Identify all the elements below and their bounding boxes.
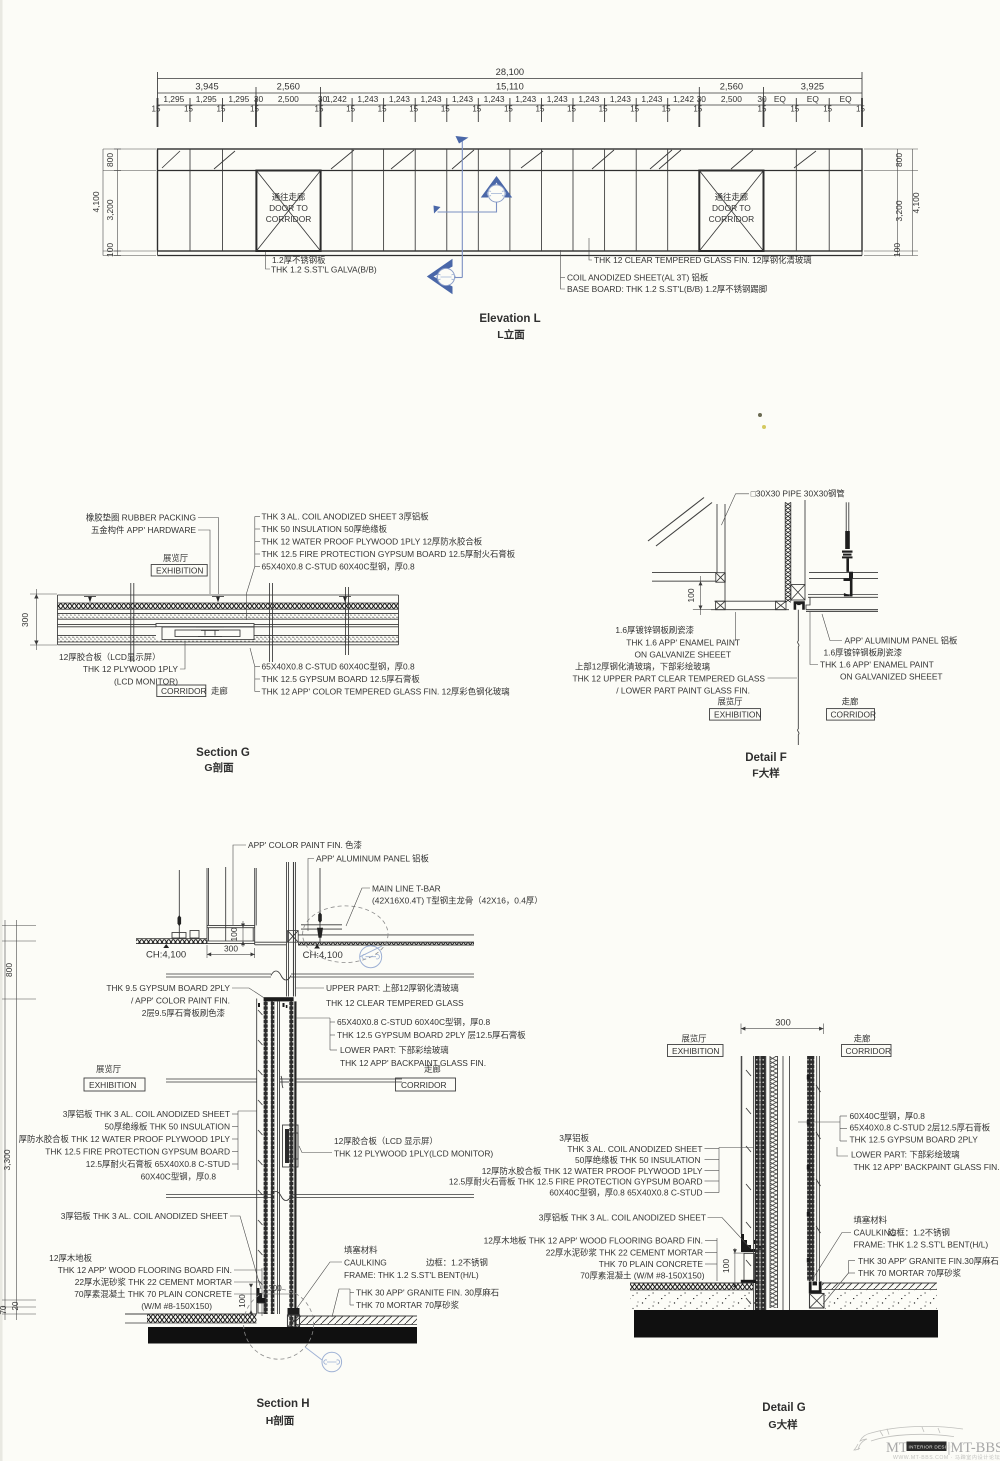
svg-text:2,560: 2,560 <box>277 82 300 92</box>
svg-text:1,295: 1,295 <box>196 94 217 104</box>
svg-text:THK 1.6 APP' ENAMEL PAINT: THK 1.6 APP' ENAMEL PAINT <box>626 638 740 648</box>
svg-text:12厚胶合板（LCD显示屏）: 12厚胶合板（LCD显示屏） <box>59 652 160 662</box>
svg-text:15: 15 <box>536 105 545 114</box>
svg-text:□30X30 PIPE 30X30钢管: □30X30 PIPE 30X30钢管 <box>751 489 845 499</box>
svg-text:15: 15 <box>758 105 767 114</box>
svg-text:15: 15 <box>346 105 355 114</box>
svg-text:1,242: 1,242 <box>673 94 694 104</box>
svg-text:THK 12.5 GYPSUM BOARD 2PLY: THK 12.5 GYPSUM BOARD 2PLY <box>850 1135 979 1145</box>
svg-text:五金构件 APP' HARDWARE: 五金构件 APP' HARDWARE <box>91 525 196 535</box>
svg-text:3,945: 3,945 <box>195 82 218 92</box>
svg-text:Detail G: Detail G <box>762 1402 806 1414</box>
svg-text:100: 100 <box>238 1294 247 1308</box>
svg-text:2层9.5厚石膏板刷色漆: 2层9.5厚石膏板刷色漆 <box>142 1008 226 1018</box>
svg-text:1,243: 1,243 <box>641 94 662 104</box>
svg-text:15: 15 <box>409 105 418 114</box>
svg-text:800: 800 <box>894 153 904 167</box>
svg-text:70厚素混凝土 (W/M #8-150X150): 70厚素混凝土 (W/M #8-150X150) <box>580 1271 704 1281</box>
svg-text:THK 12 PLYWOOD 1PLY(LCD MONITO: THK 12 PLYWOOD 1PLY(LCD MONITOR) <box>334 1149 493 1159</box>
svg-text:Elevation L: Elevation L <box>479 313 540 325</box>
svg-text:橡胶垫圈 RUBBER PACKING: 橡胶垫圈 RUBBER PACKING <box>86 513 196 523</box>
svg-text:BASE BOARD: THK 1.2 S.ST'L(B/B: BASE BOARD: THK 1.2 S.ST'L(B/B) 1.2厚不锈钢踢… <box>567 284 767 294</box>
svg-text:CORRIDOR: CORRIDOR <box>846 1046 892 1056</box>
svg-text:300: 300 <box>268 1284 282 1293</box>
svg-text:12厚防水胶合板 THK 12 WATER PROOF P: 12厚防水胶合板 THK 12 WATER PROOF PLYWOOD 1PLY <box>482 1166 703 1176</box>
svg-text:2,500: 2,500 <box>721 94 742 104</box>
svg-text:通往走廊: 通往走廊 <box>715 192 749 202</box>
svg-text:/ APP' COLOR PAINT FIN.: / APP' COLOR PAINT FIN. <box>131 996 230 1006</box>
svg-text:1,243: 1,243 <box>421 94 442 104</box>
svg-text:1,242: 1,242 <box>326 94 347 104</box>
svg-text:15: 15 <box>441 105 450 114</box>
svg-text:DOOR TO: DOOR TO <box>269 203 308 213</box>
svg-text:1,243: 1,243 <box>515 94 536 104</box>
svg-text:APP' ALUMINUM PANEL 铝板: APP' ALUMINUM PANEL 铝板 <box>845 636 958 646</box>
svg-text:15,110: 15,110 <box>496 82 524 92</box>
svg-text:28,100: 28,100 <box>496 67 524 77</box>
svg-text:CH:4,100: CH:4,100 <box>146 950 186 961</box>
svg-text:|MT-BBS: |MT-BBS <box>948 1440 1000 1456</box>
svg-text:15: 15 <box>378 105 387 114</box>
svg-text:THK 50 INSULATION 50厚绝缘板: THK 50 INSULATION 50厚绝缘板 <box>262 524 388 534</box>
svg-text:65X40X0.8 C-STUD 60X40C型钢，厚0.: 65X40X0.8 C-STUD 60X40C型钢，厚0.8 <box>337 1017 490 1027</box>
svg-text:THK 70 MORTAR 70厚砂浆: THK 70 MORTAR 70厚砂浆 <box>858 1268 962 1278</box>
svg-text:60X40C型钢，厚0.8: 60X40C型钢，厚0.8 <box>141 1172 217 1182</box>
svg-text:1,243: 1,243 <box>610 94 631 104</box>
svg-text:THK 30 APP' GRANITE FIN.30厚麻石: THK 30 APP' GRANITE FIN.30厚麻石 <box>858 1256 999 1266</box>
svg-text:1.2厚不锈钢板: 1.2厚不锈钢板 <box>272 255 326 265</box>
svg-text:THK 12 APP' BACKPAINT GLASS FI: THK 12 APP' BACKPAINT GLASS FIN. <box>854 1162 1000 1172</box>
svg-text:1,243: 1,243 <box>547 94 568 104</box>
svg-text:3厚铝板 THK 3 AL. COIL ANODIZED: 3厚铝板 THK 3 AL. COIL ANODIZED SHEET <box>63 1109 230 1119</box>
svg-text:填塞材料: 填塞材料 <box>344 1245 378 1255</box>
svg-text:APP' COLOR PAINT FIN. 色漆: APP' COLOR PAINT FIN. 色漆 <box>248 840 363 850</box>
svg-text:展览厅: 展览厅 <box>163 553 188 563</box>
svg-text:15: 15 <box>472 105 481 114</box>
svg-text:EQ: EQ <box>807 94 820 104</box>
svg-text:展览厅: 展览厅 <box>717 697 742 707</box>
svg-text:3,925: 3,925 <box>801 82 824 92</box>
svg-text:12厚木地板: 12厚木地板 <box>49 1253 92 1263</box>
svg-text:1.6厚镀锌钢板刷瓷漆: 1.6厚镀锌钢板刷瓷漆 <box>824 648 903 658</box>
svg-text:THK 12.5 GYPSUM BOARD 2PLY 层1: THK 12.5 GYPSUM BOARD 2PLY 层12.5厚石膏板 <box>337 1030 526 1040</box>
svg-text:4,100: 4,100 <box>91 191 101 212</box>
svg-text:THK 12 CLEAR TEMPERED GLASS: THK 12 CLEAR TEMPERED GLASS <box>326 998 464 1008</box>
svg-text:Detail F: Detail F <box>745 752 787 764</box>
svg-text:CAULKING: CAULKING <box>344 1258 387 1268</box>
svg-text:15: 15 <box>152 105 161 114</box>
svg-text:MAIN LINE T-BAR: MAIN LINE T-BAR <box>372 884 441 894</box>
svg-text:展览厅: 展览厅 <box>681 1034 706 1044</box>
svg-text:60X40C型钢，厚0.8 65X40X0.8 C-ST: 60X40C型钢，厚0.8 65X40X0.8 C-STUD <box>549 1188 702 1198</box>
svg-text:THK 30 APP' GRANITE FIN. 30厚麻石: THK 30 APP' GRANITE FIN. 30厚麻石 <box>356 1288 499 1298</box>
svg-text:填塞材料: 填塞材料 <box>854 1215 888 1225</box>
svg-text:15: 15 <box>567 105 576 114</box>
svg-text:FRAME: THK 1.2 S.ST'L BENT(H/L: FRAME: THK 1.2 S.ST'L BENT(H/L) <box>854 1240 989 1250</box>
svg-text:DOOR TO: DOOR TO <box>712 203 751 213</box>
svg-text:3,200: 3,200 <box>105 199 115 220</box>
svg-text:CORRIDOR: CORRIDOR <box>161 686 207 696</box>
svg-text:THK 12.5 FIRE PROTECTION GYPSU: THK 12.5 FIRE PROTECTION GYPSUM BOARD 12… <box>262 549 516 559</box>
svg-text:15: 15 <box>790 105 799 114</box>
svg-text:800: 800 <box>105 153 115 167</box>
svg-text:(42X16X0.4T) T型钢主龙骨（42X16，0.4: (42X16X0.4T) T型钢主龙骨（42X16，0.4厚） <box>372 896 543 906</box>
svg-text:50厚绝缘板 THK 50 INSULATION: 50厚绝缘板 THK 50 INSULATION <box>575 1155 701 1165</box>
svg-text:LOWER PART: 下部彩绘玻璃: LOWER PART: 下部彩绘玻璃 <box>851 1150 960 1160</box>
svg-text:15: 15 <box>315 105 324 114</box>
svg-text:F大样: F大样 <box>752 767 780 780</box>
svg-text:上部12厚钢化清玻璃，下部彩绘玻璃: 上部12厚钢化清玻璃，下部彩绘玻璃 <box>575 662 710 672</box>
svg-text:15: 15 <box>504 105 513 114</box>
svg-text:22厚水泥砂浆 THK 22 CEMENT MORTAR: 22厚水泥砂浆 THK 22 CEMENT MORTAR <box>546 1248 703 1258</box>
svg-text:THK 9.5 GYPSUM BOARD 2PLY: THK 9.5 GYPSUM BOARD 2PLY <box>106 983 230 993</box>
svg-text:THK 12 APP' WOOD FLOORING BOAR: THK 12 APP' WOOD FLOORING BOARD FIN. <box>58 1265 232 1275</box>
svg-text:THK 70 MORTAR 70厚砂浆: THK 70 MORTAR 70厚砂浆 <box>356 1300 460 1310</box>
svg-text:走廊: 走廊 <box>842 697 859 707</box>
svg-text:12.5厚耐火石膏板 THK 12.5 FIRE PROT: 12.5厚耐火石膏板 THK 12.5 FIRE PROTECTION GYPS… <box>449 1177 703 1187</box>
svg-text:100: 100 <box>686 588 696 602</box>
svg-text:15: 15 <box>184 105 193 114</box>
svg-text:THK 12 UPPER PART CLEAR TEMPER: THK 12 UPPER PART CLEAR TEMPERED GLASS <box>572 674 765 684</box>
svg-text:1,243: 1,243 <box>452 94 473 104</box>
svg-text:1,243: 1,243 <box>578 94 599 104</box>
svg-text:THK 70 PLAIN CONCRETE: THK 70 PLAIN CONCRETE <box>599 1259 704 1269</box>
svg-text:30: 30 <box>697 94 707 104</box>
svg-text:EQ: EQ <box>774 94 787 104</box>
svg-text:2,560: 2,560 <box>720 82 743 92</box>
svg-text:CORRIDOR: CORRIDOR <box>401 1080 447 1090</box>
svg-text:800: 800 <box>4 963 14 977</box>
svg-text:COIL ANODIZED SHEET(AL 3T) 铝板: COIL ANODIZED SHEET(AL 3T) 铝板 <box>567 273 709 283</box>
svg-text:EXHIBITION: EXHIBITION <box>156 566 203 576</box>
svg-text:1,243: 1,243 <box>389 94 410 104</box>
svg-text:LOWER PART: 下部彩绘玻璃: LOWER PART: 下部彩绘玻璃 <box>340 1045 449 1055</box>
svg-text:EQ: EQ <box>840 94 853 104</box>
svg-text:100: 100 <box>721 1259 731 1273</box>
svg-text:(W/M #8-150X150): (W/M #8-150X150) <box>141 1301 212 1311</box>
svg-text:3,200: 3,200 <box>894 200 904 221</box>
svg-text:20: 20 <box>11 1301 20 1310</box>
svg-text:12.5厚耐火石膏板 65X40X0.8 C-STUD: 12.5厚耐火石膏板 65X40X0.8 C-STUD <box>86 1159 230 1169</box>
svg-text:THK 12 CLEAR TEMPERED GLASS FI: THK 12 CLEAR TEMPERED GLASS FIN. 12厚钢化清玻… <box>594 255 812 265</box>
svg-text:CORRIDOR: CORRIDOR <box>266 214 312 224</box>
svg-text:15: 15 <box>630 105 639 114</box>
svg-text:走廊: 走廊 <box>211 686 228 696</box>
svg-text:1,295: 1,295 <box>228 94 249 104</box>
svg-text:60X40C型钢，厚0.8: 60X40C型钢，厚0.8 <box>850 1111 926 1121</box>
svg-text:边框：1.2不锈钢: 边框：1.2不锈钢 <box>888 1228 950 1238</box>
svg-text:/ LOWER PART PAINT GLASS FIN.: / LOWER PART PAINT GLASS FIN. <box>616 686 750 696</box>
svg-text:展览厅: 展览厅 <box>96 1064 121 1074</box>
svg-text:THK 12 APP' BACKPAINT GLASS FI: THK 12 APP' BACKPAINT GLASS FIN. <box>340 1058 486 1068</box>
svg-text:65X40X0.8 C-STUD 60X40C型钢，厚0.: 65X40X0.8 C-STUD 60X40C型钢，厚0.8 <box>262 662 415 672</box>
svg-text:THK 3 AL. COIL ANODIZED SHEET: THK 3 AL. COIL ANODIZED SHEET <box>567 1144 702 1154</box>
svg-text:THK 12 WATER PROOF PLYWOOD 1PL: THK 12 WATER PROOF PLYWOOD 1PLY 12厚防水胶合板 <box>262 537 483 547</box>
svg-text:G大样: G大样 <box>768 1418 798 1431</box>
svg-text:3厚铝板 THK 3 AL. COIL ANODIZED: 3厚铝板 THK 3 AL. COIL ANODIZED SHEET <box>61 1211 228 1221</box>
svg-text:边框：1.2不锈钢: 边框：1.2不锈钢 <box>426 1258 488 1268</box>
svg-text:300: 300 <box>775 1018 791 1028</box>
svg-text:ON GALVANIZED SHEEET: ON GALVANIZED SHEEET <box>840 672 943 682</box>
svg-text:CORRIDOR: CORRIDOR <box>709 214 755 224</box>
svg-text:WWW.MT-BBS.COM · 马蹄室内设计论坛: WWW.MT-BBS.COM · 马蹄室内设计论坛 <box>893 1453 1000 1461</box>
svg-text:THK 12.5 GYPSUM BOARD 12.5厚石膏: THK 12.5 GYPSUM BOARD 12.5厚石膏板 <box>262 674 421 684</box>
svg-text:Section G: Section G <box>196 747 250 759</box>
svg-text:15: 15 <box>856 105 865 114</box>
svg-text:EXHIBITION: EXHIBITION <box>89 1080 136 1090</box>
svg-text:65X40X0.8 C-STUD 60X40C型钢，厚0.: 65X40X0.8 C-STUD 60X40C型钢，厚0.8 <box>262 562 415 572</box>
svg-text:65X40X0.8 C-STUD 2层12.5厚石膏板: 65X40X0.8 C-STUD 2层12.5厚石膏板 <box>850 1123 991 1133</box>
svg-text:CORRIDOR: CORRIDOR <box>831 710 877 720</box>
svg-text:THK 3 AL. COIL ANODIZED SHEET: THK 3 AL. COIL ANODIZED SHEET 3厚铝板 <box>262 512 430 522</box>
svg-text:300: 300 <box>20 613 30 627</box>
svg-text:THK 1.2 S.ST'L GALVA(B/B): THK 1.2 S.ST'L GALVA(B/B) <box>271 265 377 275</box>
svg-text:15: 15 <box>823 105 832 114</box>
svg-text:70: 70 <box>0 1305 8 1314</box>
svg-text:100: 100 <box>105 243 115 257</box>
svg-text:15: 15 <box>662 105 671 114</box>
svg-text:EXHIBITION: EXHIBITION <box>714 710 761 720</box>
svg-text:15: 15 <box>250 105 259 114</box>
svg-text:12厚木地板 THK 12 APP' WOOD FLOOR: 12厚木地板 THK 12 APP' WOOD FLOORING BOARD F… <box>484 1236 703 1246</box>
svg-text:1,243: 1,243 <box>484 94 505 104</box>
svg-text:100: 100 <box>892 243 902 257</box>
svg-text:EXHIBITION: EXHIBITION <box>672 1046 719 1056</box>
svg-text:300: 300 <box>224 944 238 954</box>
svg-text:12厚胶合板（LCD 显示屏）: 12厚胶合板（LCD 显示屏） <box>334 1136 438 1146</box>
svg-text:THK 12 APP' COLOR TEMPERED GLA: THK 12 APP' COLOR TEMPERED GLASS FIN. 12… <box>262 687 510 697</box>
svg-text:3,300: 3,300 <box>2 1149 12 1170</box>
svg-text:APP' ALUMINUM PANEL 铝板: APP' ALUMINUM PANEL 铝板 <box>316 854 429 864</box>
svg-text:15: 15 <box>693 105 702 114</box>
svg-text:70厚素混凝土 THK 70 PLAIN CONCRETE: 70厚素混凝土 THK 70 PLAIN CONCRETE <box>74 1289 232 1299</box>
svg-text:CH:4,100: CH:4,100 <box>303 950 343 961</box>
svg-text:走廊: 走廊 <box>854 1034 871 1044</box>
svg-text:THK 1.6 APP' ENAMEL PAINT: THK 1.6 APP' ENAMEL PAINT <box>820 660 934 670</box>
svg-text:ON GALVANIZE SHEEET: ON GALVANIZE SHEEET <box>635 650 732 660</box>
svg-text:MT: MT <box>886 1440 908 1456</box>
svg-text:4,100: 4,100 <box>911 192 921 213</box>
svg-text:1,295: 1,295 <box>163 94 184 104</box>
svg-text:G剖面: G剖面 <box>204 761 234 774</box>
svg-text:2,500: 2,500 <box>278 94 299 104</box>
svg-text:厚防水胶合板 THK 12 WATER PROOF PLYW: 厚防水胶合板 THK 12 WATER PROOF PLYWOOD 1PLY <box>19 1134 231 1144</box>
svg-text:UPPER PART: 上部12厚钢化清玻璃: UPPER PART: 上部12厚钢化清玻璃 <box>326 983 459 993</box>
svg-text:15: 15 <box>217 105 226 114</box>
svg-text:15: 15 <box>599 105 608 114</box>
svg-text:100: 100 <box>229 927 239 941</box>
svg-text:1,243: 1,243 <box>357 94 378 104</box>
svg-text:FRAME: THK 1.2 S.ST'L BENT(H/L: FRAME: THK 1.2 S.ST'L BENT(H/L) <box>344 1270 479 1280</box>
svg-text:3厚铝板: 3厚铝板 <box>559 1133 589 1143</box>
svg-text:3厚铝板 THK 3 AL. COIL ANODIZED: 3厚铝板 THK 3 AL. COIL ANODIZED SHEET <box>539 1213 706 1223</box>
svg-text:H剖面: H剖面 <box>266 1414 295 1427</box>
svg-text:THK 12.5 FIRE PROTECTION GYPSU: THK 12.5 FIRE PROTECTION GYPSUM BOARD <box>45 1147 230 1157</box>
svg-text:50厚绝缘板 THK 50 INSULATION: 50厚绝缘板 THK 50 INSULATION <box>105 1122 231 1132</box>
svg-text:L立面: L立面 <box>497 328 525 341</box>
svg-text:Section H: Section H <box>256 1398 309 1410</box>
svg-text:通往走廊: 通往走廊 <box>272 192 306 202</box>
svg-text:THK 12 PLYWOOD 1PLY: THK 12 PLYWOOD 1PLY <box>83 664 179 674</box>
svg-text:30: 30 <box>757 94 767 104</box>
svg-text:1.6厚镀锌钢板刷瓷漆: 1.6厚镀锌钢板刷瓷漆 <box>615 625 694 635</box>
svg-text:22厚水泥砂浆 THK 22 CEMENT MORTAR: 22厚水泥砂浆 THK 22 CEMENT MORTAR <box>75 1277 232 1287</box>
